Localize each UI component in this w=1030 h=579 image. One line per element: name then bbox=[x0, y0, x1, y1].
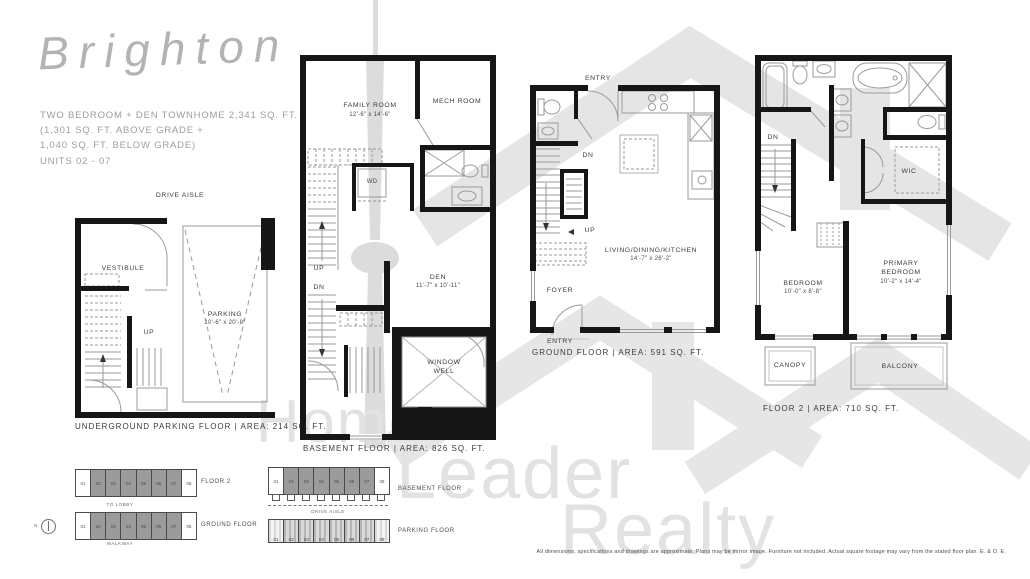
powder-door bbox=[578, 119, 592, 139]
entry-bottom-label: ENTRY bbox=[538, 337, 582, 346]
mech-door bbox=[417, 119, 433, 145]
keyplan-unit: 05 bbox=[137, 470, 152, 496]
drive-aisle-key-label: DRIVE AISLE bbox=[275, 509, 381, 514]
keyplan-unit: 05 bbox=[330, 520, 345, 542]
basement-plan: FAMILY ROOM 12'-6" x 14'-6" MECH ROOM WD… bbox=[300, 55, 496, 455]
canopy-window bbox=[775, 336, 813, 339]
entry-top-label: ENTRY bbox=[568, 74, 628, 83]
keyplan-unit: 03 bbox=[299, 468, 314, 494]
toilet bbox=[544, 100, 560, 114]
keyplan-unit: 02 bbox=[91, 470, 106, 496]
stairs-arrow bbox=[100, 354, 106, 362]
keyplan-ground-label: GROUND FLOOR bbox=[201, 522, 257, 528]
wic-label: WIC bbox=[881, 167, 937, 176]
keyplan-unit: 04 bbox=[121, 470, 136, 496]
keyplan-unit: 07 bbox=[167, 470, 182, 496]
north-compass-icon bbox=[41, 519, 56, 534]
keyplan-parking-strip: 01 02 03 04 05 06 07 08 bbox=[268, 519, 390, 543]
toilet-2 bbox=[918, 116, 936, 129]
stairs-upper bbox=[85, 296, 121, 345]
north-label: N bbox=[32, 523, 40, 528]
summary-line-1: TWO BEDROOM + DEN TOWNHOME 2,341 SQ. FT. bbox=[40, 108, 298, 123]
keyplan-unit: 04 bbox=[121, 513, 136, 539]
primary-bedroom-dim: 10'-2" x 14'-4" bbox=[855, 278, 947, 286]
lower-door-arc bbox=[89, 380, 121, 412]
keyplan-unit: 06 bbox=[152, 470, 167, 496]
canopy-label: CANOPY bbox=[765, 361, 815, 370]
keyplan-unit: 01 bbox=[76, 513, 91, 539]
to-lobby-label: TO LOBBY bbox=[85, 502, 155, 507]
summary-line-2: (1,301 SQ. FT. ABOVE GRADE + bbox=[40, 123, 298, 138]
keyplan-unit: 02 bbox=[91, 513, 106, 539]
living-dining-kitchen-label: LIVING/DINING/KITCHEN bbox=[576, 246, 726, 255]
keyplan-unit: 01 bbox=[76, 470, 91, 496]
drive-aisle-line bbox=[268, 505, 388, 506]
shower-glass bbox=[424, 150, 464, 176]
keyplan-floor2-label: FLOOR 2 bbox=[201, 479, 231, 485]
keyplan-unit: 01 bbox=[269, 468, 284, 494]
plan-summary: TWO BEDROOM + DEN TOWNHOME 2,341 SQ. FT.… bbox=[40, 108, 298, 169]
keyplan-floor2-strip: 01 02 03 04 05 06 07 08 bbox=[75, 469, 197, 497]
parking-dim: 10'-6" x 20'-8" bbox=[185, 319, 265, 327]
keyplan-unit: 08 bbox=[182, 513, 196, 539]
island bbox=[620, 135, 658, 173]
floorplan-sheet: Home Leader Realty Brighton TWO BEDROOM … bbox=[0, 0, 1030, 579]
front-door-arc bbox=[552, 305, 582, 335]
dn-label: DN bbox=[308, 283, 330, 292]
vestibule-door-arc bbox=[133, 224, 167, 290]
ground-floor-plan: ENTRY DN UP LIVING/DINING/KITCHEN 14'-7"… bbox=[530, 85, 720, 365]
floor2-drawing bbox=[755, 55, 952, 400]
family-room-dim: 12'-6" x 14'-6" bbox=[320, 111, 420, 119]
fridge-mark bbox=[690, 115, 712, 141]
keyplan-unit: 07 bbox=[167, 513, 182, 539]
vestibule-label: VESTIBULE bbox=[87, 264, 159, 273]
keyplan-unit: 02 bbox=[284, 468, 299, 494]
drive-aisle-label: DRIVE AISLE bbox=[130, 191, 230, 200]
keyplan-unit: 06 bbox=[152, 513, 167, 539]
bath-door bbox=[811, 111, 825, 127]
den-dim: 11'-7" x 10'-11" bbox=[398, 282, 478, 290]
plan-title: Brighton bbox=[37, 18, 290, 81]
keyplan-unit: 03 bbox=[106, 470, 121, 496]
window-well-markers bbox=[268, 494, 388, 501]
ground-floor-drawing bbox=[530, 85, 720, 350]
keyplan-unit: 08 bbox=[375, 468, 389, 494]
keyplan-unit: 03 bbox=[106, 513, 121, 539]
den-label: DEN bbox=[398, 273, 478, 282]
underground-caption: UNDERGROUND PARKING FLOOR | AREA: 214 SQ… bbox=[75, 422, 326, 431]
stairs-up-run bbox=[308, 167, 336, 202]
walls bbox=[530, 85, 720, 333]
summary-line-3: 1,040 SQ. FT. BELOW GRADE) bbox=[40, 138, 298, 153]
floor2-plan: DN WIC BEDROOM 10'-0" x 8'-8" PRIMARY BE… bbox=[755, 55, 952, 420]
keyplan-ground-strip: 01 02 03 04 05 06 07 08 bbox=[75, 512, 197, 540]
mech-room-label: MECH ROOM bbox=[420, 97, 494, 106]
bedroom-label: BEDROOM bbox=[765, 279, 841, 288]
toilet bbox=[793, 66, 807, 84]
floor2-caption: FLOOR 2 | AREA: 710 SQ. FT. bbox=[763, 404, 899, 413]
bedroom-window bbox=[757, 251, 760, 305]
bedroom-dim: 10'-0" x 8'-8" bbox=[765, 288, 841, 296]
up-arrow bbox=[568, 229, 574, 235]
keyplan-unit: 02 bbox=[284, 520, 299, 542]
dn-label: DN bbox=[576, 151, 600, 160]
living-dining-kitchen-dim: 14'-7" x 26'-2" bbox=[576, 255, 726, 263]
toilet-tank bbox=[538, 99, 544, 115]
keyplan-unit: 05 bbox=[330, 468, 345, 494]
tub-left bbox=[763, 63, 787, 111]
side-window bbox=[532, 271, 535, 301]
ground-caption: GROUND FLOOR | AREA: 591 SQ. FT. bbox=[532, 348, 704, 357]
sink-counter bbox=[452, 187, 482, 205]
keyplan-unit: 06 bbox=[345, 468, 360, 494]
keyplan-unit: 08 bbox=[182, 470, 196, 496]
basement-caption: BASEMENT FLOOR | AREA: 826 SQ. FT. bbox=[303, 444, 486, 453]
family-room-label: FAMILY ROOM bbox=[320, 101, 420, 110]
primary-window bbox=[948, 225, 951, 295]
wd-label: WD bbox=[360, 178, 384, 186]
foyer-label: FOYER bbox=[538, 286, 582, 295]
keyplan-unit: 07 bbox=[360, 468, 375, 494]
keyplan-unit: 06 bbox=[345, 520, 360, 542]
keyplan-parking-label: PARKING FLOOR bbox=[398, 528, 455, 534]
up-label: UP bbox=[308, 264, 330, 273]
dn-label: DN bbox=[761, 133, 785, 142]
kitchen-counter bbox=[622, 91, 694, 113]
keyplan-basement-strip: 01 02 03 04 05 06 07 08 bbox=[268, 467, 390, 495]
balcony-label: BALCONY bbox=[855, 362, 945, 371]
vanity-sink bbox=[813, 61, 835, 77]
stair-landing bbox=[562, 171, 586, 217]
entry-door-arc bbox=[588, 91, 618, 121]
walkway-label: WALKWAY bbox=[85, 541, 155, 546]
keyplan-unit: 03 bbox=[299, 520, 314, 542]
keyplan-unit: 01 bbox=[269, 520, 284, 542]
watermark-word-realty: Realty bbox=[560, 494, 776, 566]
toilet-tank bbox=[793, 61, 807, 66]
keyplan-basement-label: BASEMENT FLOOR bbox=[398, 486, 462, 492]
up-label: UP bbox=[137, 328, 161, 337]
wic-double-doors bbox=[863, 147, 883, 193]
keyplan-unit: 04 bbox=[314, 468, 329, 494]
keyplan-unit: 07 bbox=[360, 520, 375, 542]
keyplan-unit: 05 bbox=[137, 513, 152, 539]
keyplan-unit: 04 bbox=[314, 520, 329, 542]
keyplan-unit: 08 bbox=[375, 520, 389, 542]
window-well-label: WINDOW WELL bbox=[414, 358, 474, 376]
disclaimer-text: All dimensions, specifications and drawi… bbox=[537, 549, 1006, 555]
stairs bbox=[534, 143, 560, 233]
summary-line-4: UNITS 02 - 07 bbox=[40, 154, 298, 169]
primary-bedroom-label: PRIMARY BEDROOM bbox=[855, 259, 947, 277]
underground-parking-plan: VESTIBULE UP PARKING 10'-6" x 20'-8" UND… bbox=[75, 218, 275, 448]
balcony-door-glazing bbox=[857, 336, 941, 339]
parking-label: PARKING bbox=[185, 310, 265, 319]
up-label: UP bbox=[578, 226, 602, 235]
winder-treads bbox=[759, 205, 791, 231]
powder-sink bbox=[538, 123, 558, 139]
kitchen-sink bbox=[692, 171, 712, 189]
